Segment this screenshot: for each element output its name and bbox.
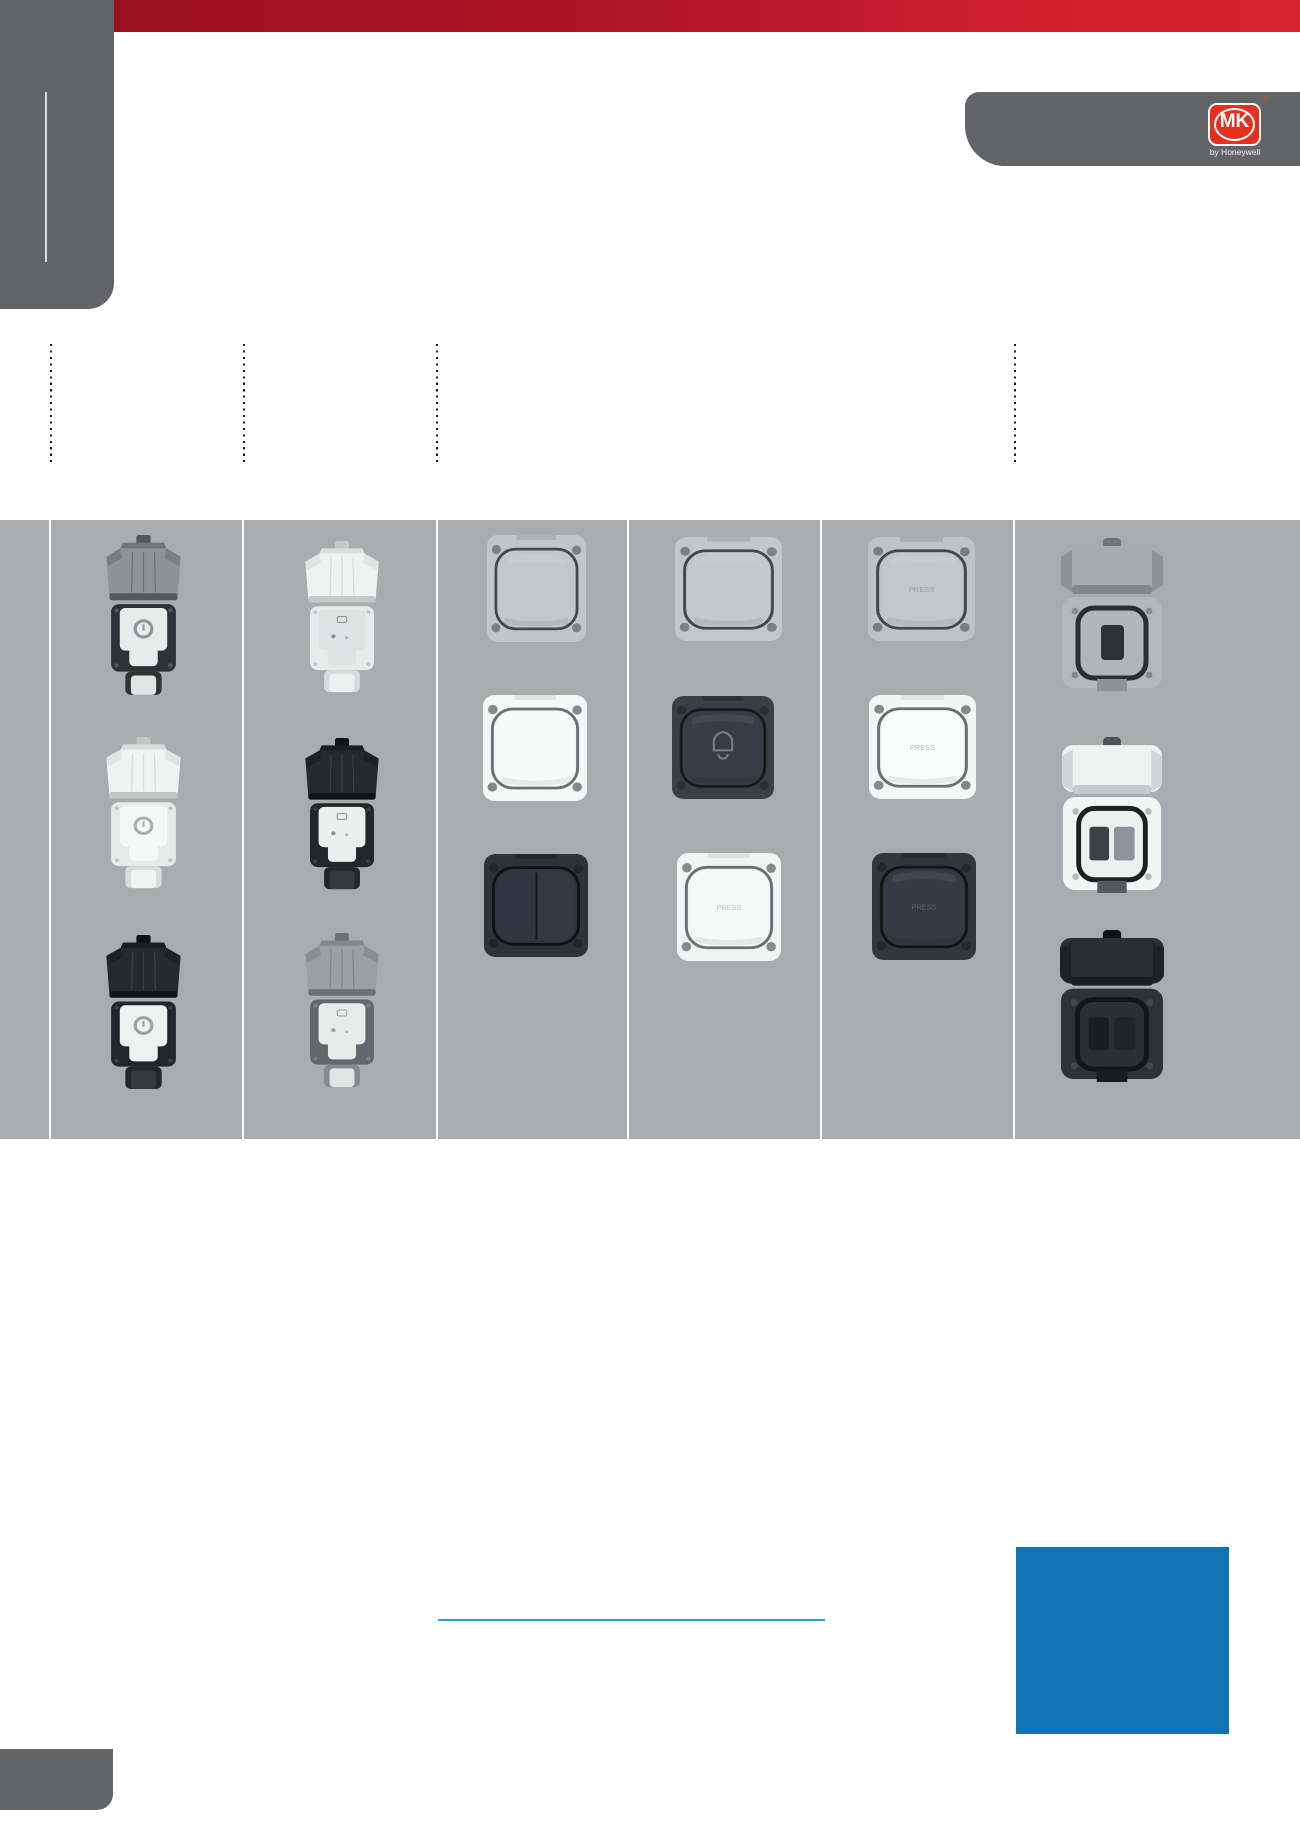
svg-text:PRESS: PRESS — [717, 903, 742, 912]
svg-text:PRESS: PRESS — [910, 744, 936, 752]
svg-text:PRESS: PRESS — [912, 904, 937, 912]
svg-text:PRESS: PRESS — [909, 586, 935, 594]
